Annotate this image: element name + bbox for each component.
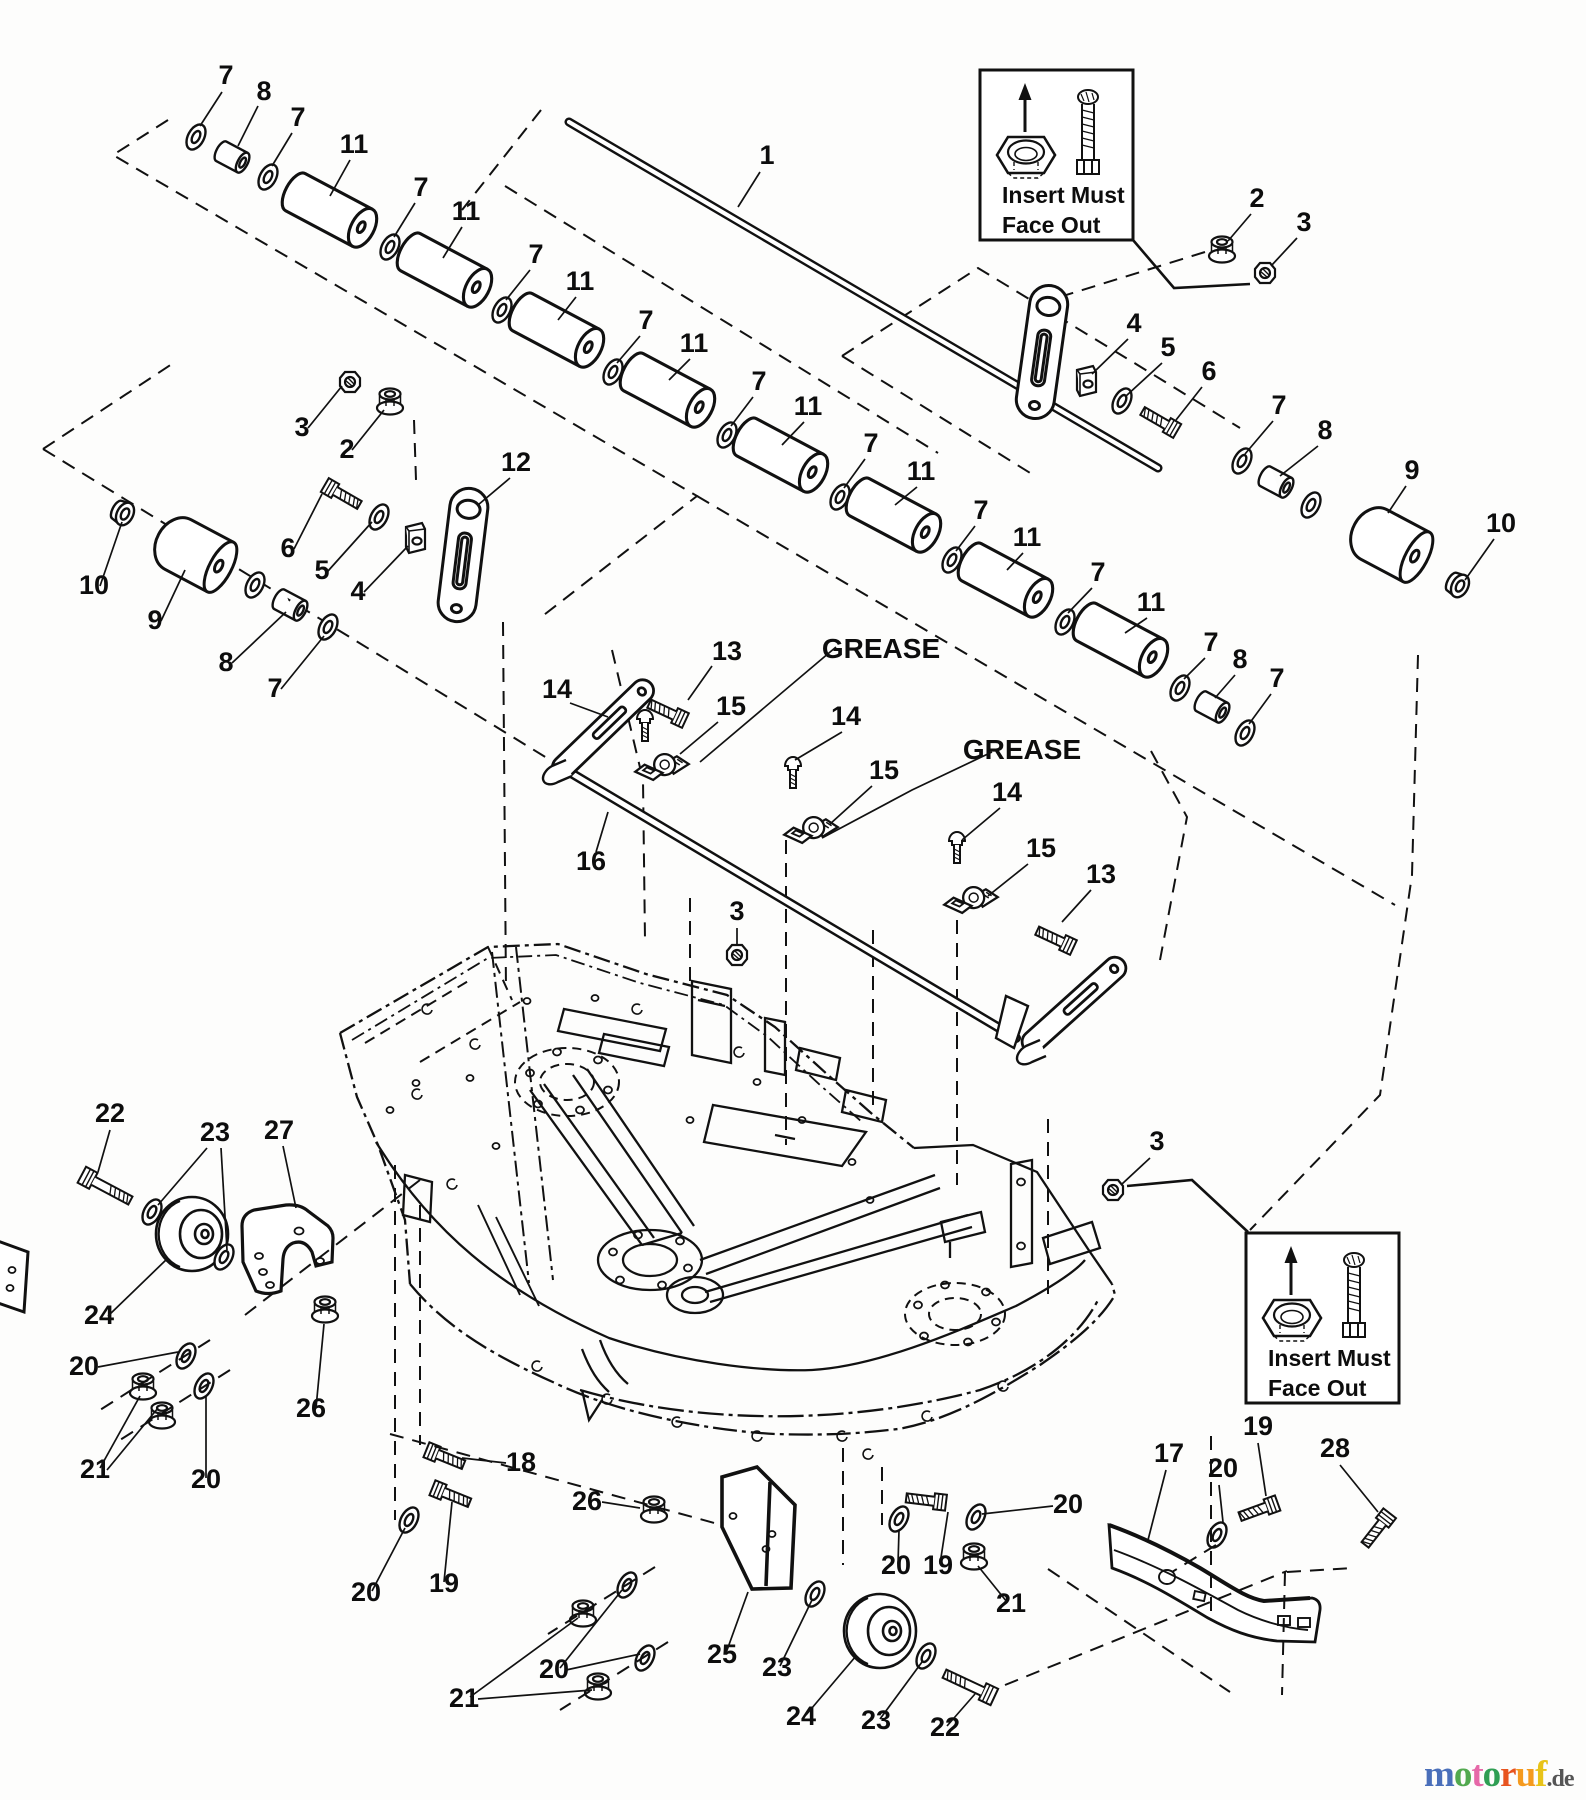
svg-text:13: 13: [1086, 859, 1116, 889]
svg-text:13: 13: [712, 636, 742, 666]
svg-text:7: 7: [290, 102, 305, 132]
svg-text:21: 21: [996, 1588, 1026, 1618]
svg-text:23: 23: [200, 1117, 230, 1147]
svg-text:22: 22: [95, 1098, 125, 1128]
svg-text:6: 6: [1201, 356, 1216, 386]
svg-text:11: 11: [794, 391, 823, 421]
svg-text:7: 7: [1271, 390, 1286, 420]
svg-text:15: 15: [1026, 833, 1056, 863]
svg-text:11: 11: [1137, 587, 1166, 617]
svg-text:11: 11: [452, 196, 481, 226]
svg-text:12: 12: [501, 447, 531, 477]
svg-text:5: 5: [1160, 332, 1175, 362]
svg-text:11: 11: [680, 328, 709, 358]
svg-text:8: 8: [1317, 415, 1332, 445]
svg-text:24: 24: [786, 1701, 816, 1731]
svg-text:8: 8: [218, 647, 233, 677]
svg-text:3: 3: [294, 412, 309, 442]
svg-text:3: 3: [729, 896, 744, 926]
svg-text:11: 11: [907, 456, 936, 486]
svg-text:7: 7: [973, 495, 988, 525]
svg-text:4: 4: [1126, 308, 1141, 338]
svg-text:20: 20: [1053, 1489, 1083, 1519]
svg-text:11: 11: [1013, 522, 1042, 552]
svg-text:7: 7: [751, 366, 766, 396]
svg-text:3: 3: [1296, 207, 1311, 237]
svg-text:27: 27: [264, 1115, 294, 1145]
svg-text:17: 17: [1154, 1438, 1184, 1468]
svg-text:7: 7: [267, 673, 282, 703]
svg-text:16: 16: [576, 846, 606, 876]
svg-text:20: 20: [69, 1351, 99, 1381]
svg-text:3: 3: [1149, 1126, 1164, 1156]
svg-text:14: 14: [831, 701, 861, 731]
svg-text:25: 25: [707, 1639, 737, 1669]
svg-text:19: 19: [1243, 1411, 1273, 1441]
svg-text:14: 14: [542, 674, 572, 704]
svg-text:2: 2: [1249, 183, 1264, 213]
svg-text:8: 8: [1232, 644, 1247, 674]
svg-text:26: 26: [296, 1393, 326, 1423]
svg-text:15: 15: [869, 755, 899, 785]
svg-text:23: 23: [762, 1652, 792, 1682]
svg-text:7: 7: [528, 239, 543, 269]
svg-text:7: 7: [638, 305, 653, 335]
svg-text:7: 7: [218, 60, 233, 90]
svg-text:8: 8: [256, 76, 271, 106]
svg-text:7: 7: [413, 172, 428, 202]
svg-text:4: 4: [350, 576, 365, 606]
svg-text:21: 21: [449, 1683, 479, 1713]
svg-text:19: 19: [923, 1550, 953, 1580]
svg-text:15: 15: [716, 691, 746, 721]
svg-text:GREASE: GREASE: [963, 734, 1081, 765]
svg-text:9: 9: [1404, 455, 1419, 485]
svg-text:7: 7: [1269, 663, 1284, 693]
svg-text:11: 11: [566, 266, 595, 296]
svg-text:7: 7: [1203, 627, 1218, 657]
svg-text:11: 11: [340, 129, 369, 159]
svg-text:1: 1: [759, 140, 774, 170]
svg-text:28: 28: [1320, 1433, 1350, 1463]
svg-text:10: 10: [1486, 508, 1516, 538]
svg-text:20: 20: [881, 1550, 911, 1580]
svg-text:19: 19: [429, 1568, 459, 1598]
svg-text:7: 7: [863, 428, 878, 458]
svg-text:14: 14: [992, 777, 1022, 807]
svg-text:5: 5: [314, 555, 329, 585]
svg-text:20: 20: [539, 1654, 569, 1684]
svg-text:7: 7: [1090, 557, 1105, 587]
svg-text:20: 20: [1208, 1453, 1238, 1483]
svg-text:9: 9: [147, 605, 162, 635]
svg-text:6: 6: [280, 533, 295, 563]
svg-text:GREASE: GREASE: [822, 633, 940, 664]
